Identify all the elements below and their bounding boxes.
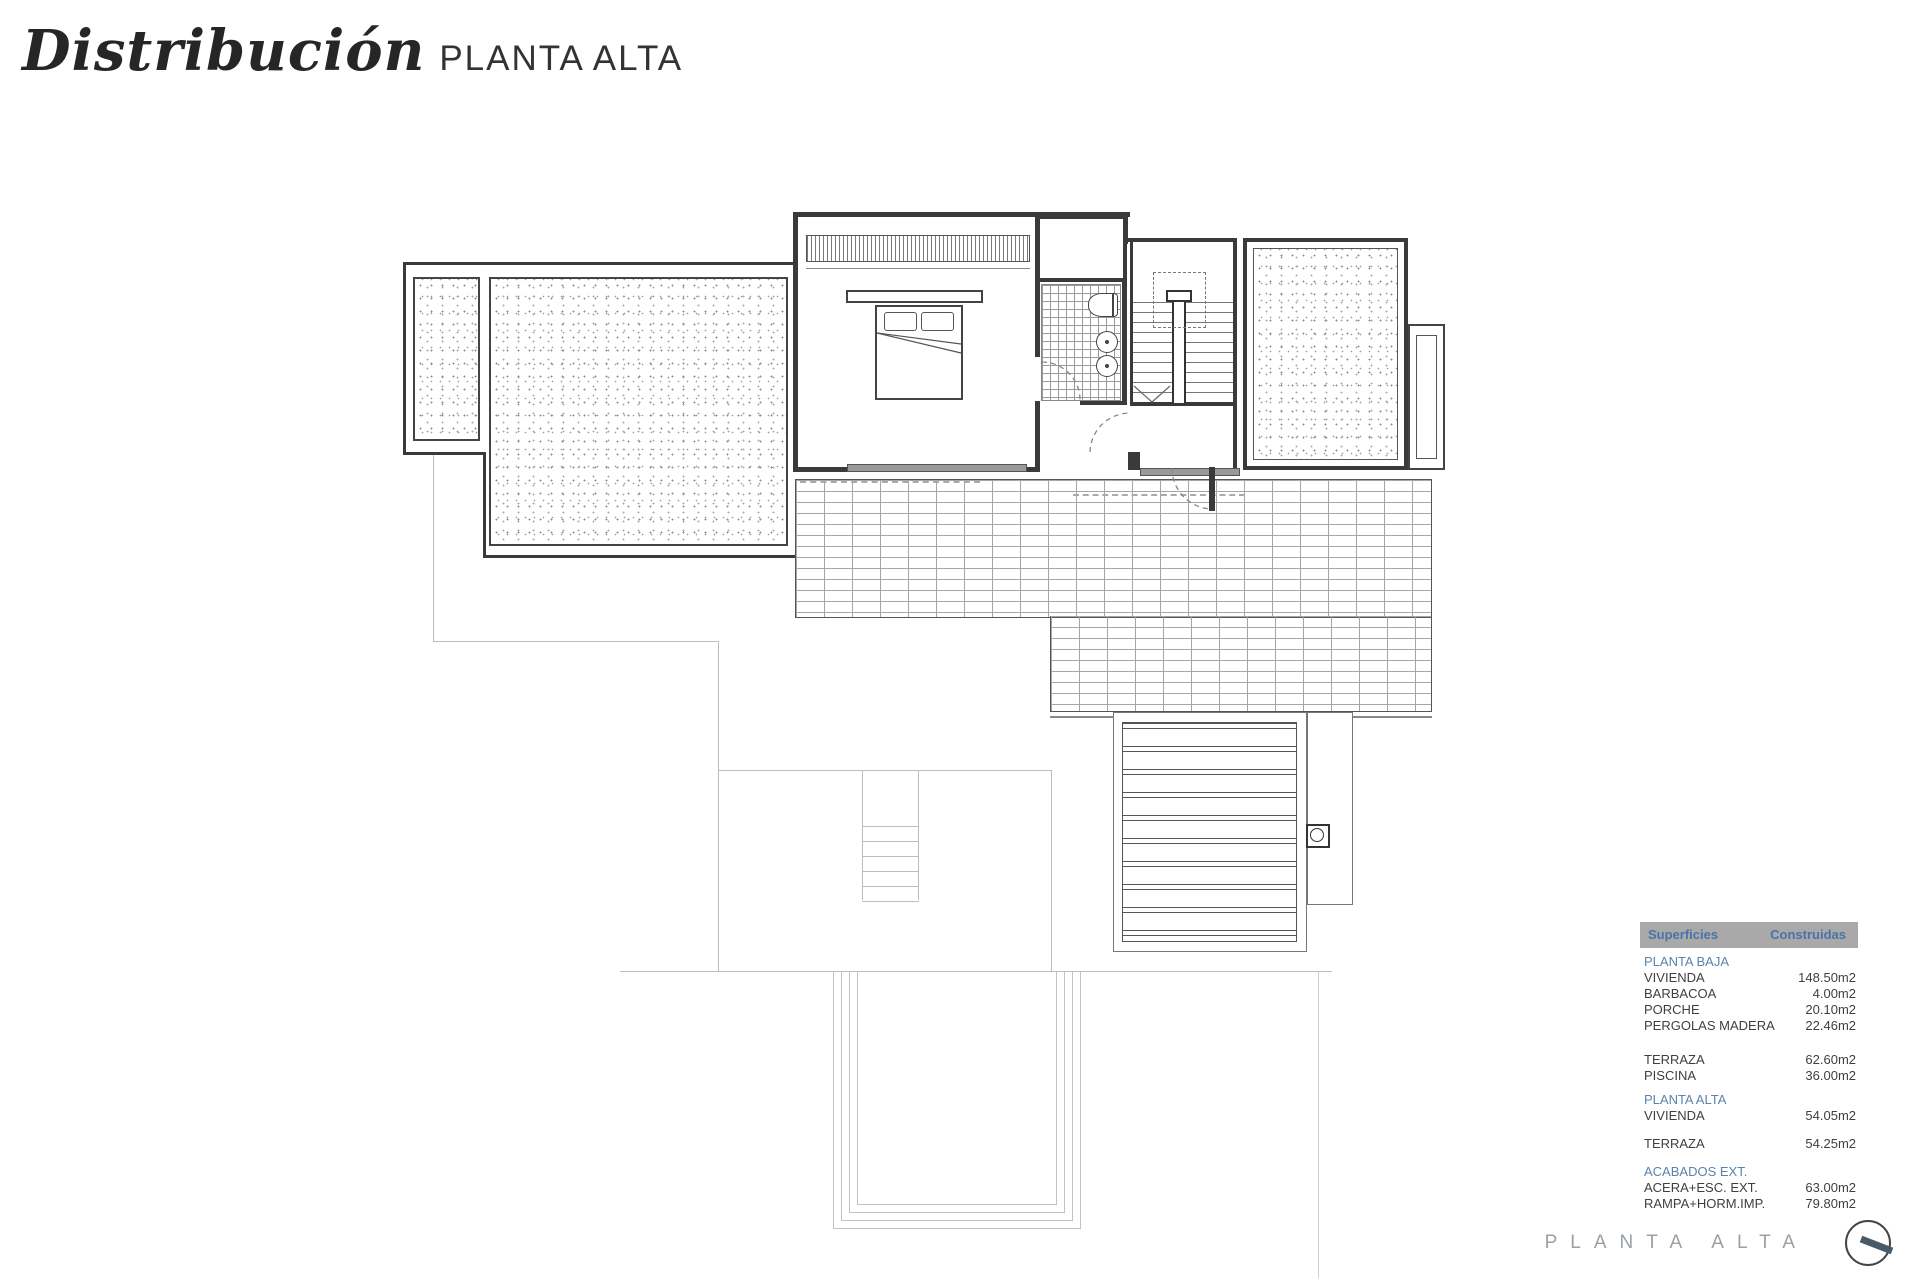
row-label: PERGOLAS MADERA [1644,1018,1775,1034]
surfaces-table: Superficies Construidas PLANTA BAJA VIVI… [1640,922,1858,1212]
pergola-slats [1122,722,1297,942]
table-row: PERGOLAS MADERA 22.46m2 [1640,1018,1858,1034]
row-label: TERRAZA [1644,1136,1705,1152]
toilet-tank-line [1112,293,1114,317]
hall-door-arc [1090,413,1130,452]
table-row: RAMPA+HORM.IMP. 79.80m2 [1640,1196,1858,1212]
table-row: VIVIENDA 54.05m2 [1640,1108,1858,1124]
col-construidas: Construidas [1770,927,1846,943]
table-row: TERRAZA 54.25m2 [1640,1136,1858,1152]
row-label: BARBACOA [1644,986,1716,1002]
hall-window [1140,468,1240,476]
terrace-wall-bottom [483,555,795,558]
table-row: VIVIENDA 148.50m2 [1640,970,1858,986]
section-planta-baja: PLANTA BAJA [1640,954,1858,970]
row-value: 54.25m2 [1805,1136,1856,1152]
roof-terrace-large [489,277,788,546]
column-circle [1310,828,1324,842]
overhang-dashed-left [800,481,980,483]
surfaces-table-header: Superficies Construidas [1640,922,1858,948]
row-label: VIVIENDA [1644,1108,1705,1124]
row-label: RAMPA+HORM.IMP. [1644,1196,1765,1212]
bathroom-door-opening [1035,357,1040,401]
section-acabados-ext: ACABADOS EXT. [1640,1164,1858,1180]
table-row: PORCHE 20.10m2 [1640,1002,1858,1018]
row-value: 148.50m2 [1798,970,1856,986]
row-value: 36.00m2 [1805,1068,1856,1084]
shower-box [1036,215,1127,282]
tiled-terrace-lower [1050,616,1432,712]
logo-needle [1861,1239,1892,1251]
page: { "title": { "main": "Distribución", "su… [0,0,1920,1280]
bed-pillow-left [884,312,917,331]
footer-plan-label: PLANTA ALTA [1545,1232,1808,1254]
terrace-wall-left [403,262,406,455]
sink-dot-top [1105,340,1109,344]
row-label: ACERA+ESC. EXT. [1644,1180,1758,1196]
floor-plan [0,0,1920,1280]
row-value: 62.60m2 [1805,1052,1856,1068]
table-row: BARBACOA 4.00m2 [1640,986,1858,1002]
bathroom-wall-bottom [1080,401,1127,405]
tiled-terrace-upper [795,479,1432,618]
ground-outline-horizontal [433,641,719,642]
bathroom-wall-right [1122,282,1127,405]
row-value: 79.80m2 [1805,1196,1856,1212]
planter-inner [1416,335,1437,459]
row-value: 22.46m2 [1805,1018,1856,1034]
row-value: 54.05m2 [1805,1108,1856,1124]
toilet [1088,293,1118,317]
stair-headroom-dashed [1153,272,1206,328]
row-label: PORCHE [1644,1002,1700,1018]
section-planta-alta: PLANTA ALTA [1640,1092,1858,1108]
right-terrace-stipple [1253,248,1398,460]
table-row: PISCINA 36.00m2 [1640,1068,1858,1084]
table-row: ACERA+ESC. EXT. 63.00m2 [1640,1180,1858,1196]
wardrobe-shelf-line [806,268,1030,269]
row-label: VIVIENDA [1644,970,1705,986]
hall-wall-stub [1128,452,1140,470]
logo-circle [1846,1221,1890,1265]
bed-pillow-right [921,312,954,331]
row-label: PISCINA [1644,1068,1696,1084]
stair-wall-top [1127,238,1237,242]
terrace-wall-top [403,262,795,265]
col-superficies: Superficies [1648,927,1718,943]
wardrobe [806,235,1030,262]
pool-step-4 [857,972,1057,1205]
row-value: 4.00m2 [1813,986,1856,1002]
exterior-stair-treads [862,826,919,902]
table-row: TERRAZA 62.60m2 [1640,1052,1858,1068]
stair-wall-right [1233,238,1237,472]
pergola-side-extension [1307,712,1353,905]
sink-dot-bottom [1105,364,1109,368]
row-value: 63.00m2 [1805,1180,1856,1196]
overhang-dashed-right [1073,494,1245,496]
row-value: 20.10m2 [1805,1002,1856,1018]
terrace-wall-step [483,452,486,558]
bedroom-window [847,464,1027,472]
roof-terrace-narrow [413,277,480,441]
headboard-shelf [846,290,983,303]
row-label: TERRAZA [1644,1052,1705,1068]
ground-outline-right-vertical [1318,972,1319,1278]
terrace-wall-bottom-left [403,452,486,455]
ground-outline-left-vertical [433,455,434,642]
